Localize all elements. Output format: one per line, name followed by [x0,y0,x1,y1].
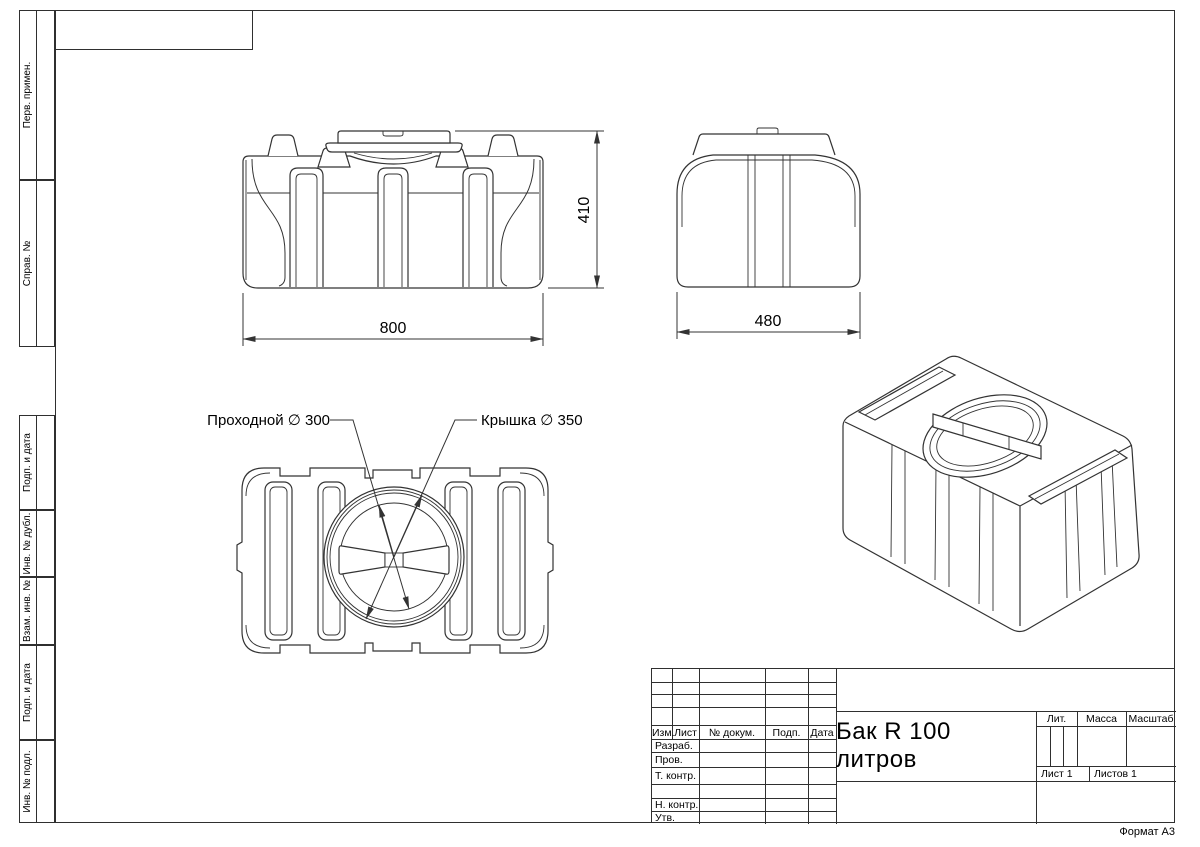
margin-cell-divider [36,646,37,739]
titleblock-line [1050,726,1051,766]
front-width-dim-text: 800 [380,320,407,337]
titleblock-line [652,767,836,768]
titleblock-line [652,694,836,695]
margin-cell-vzam-inv-no: Взам. инв. № [19,577,55,645]
isometric-view [815,348,1165,648]
row-label-razrab: Разраб. [655,740,693,752]
front-lid [318,131,468,167]
margin-cell-sprav-no: Справ. № [19,180,55,347]
margin-cell-podp-i-data-1: Подп. и дата [19,415,55,510]
masshtab-header: Масштаб [1126,713,1176,725]
col-header-list: Лист [672,727,699,739]
sheet-number: Лист 1 [1041,768,1073,780]
titleblock-line [1036,726,1176,727]
front-ribs [290,168,493,287]
row-label-prov: Пров. [655,754,683,766]
titleblock-line [652,811,836,812]
format-note: Формат А3 [1085,826,1175,838]
front-view-body [243,131,543,288]
front-view: 800 410 [180,115,610,360]
margin-cell-inv-no-dubl: Инв. № дубл. [19,510,55,577]
side-dimensions: 480 [677,292,860,339]
top-view: Проходной ∅ 300 Крышка ∅ 350 [180,390,600,690]
margin-label-sprav-no: Справ. № [20,181,36,346]
side-lid-trapezoid [693,134,835,155]
passage-callout-text: Проходной ∅ 300 [207,412,330,429]
margin-label-inv-no-dubl: Инв. № дубл. [20,511,36,576]
col-header-podp: Подп. [765,727,808,739]
titleblock-line [652,752,836,753]
front-left-end-curve [252,159,285,286]
col-header-izm: Изм. [652,727,672,739]
titleblock-line [699,669,700,824]
iso-tank [843,356,1139,631]
titleblock-line [808,669,809,824]
margin-label-perv-primen: Перв. примен. [20,11,36,179]
col-header-ndocum: № докум. [699,727,765,739]
drawing-sheet: Перв. примен. Справ. № Подп. и дата Инв.… [0,0,1200,847]
margin-cell-perv-primen: Перв. примен. [19,10,55,180]
side-view-body [677,128,860,287]
side-lid-notch [757,128,778,134]
titleblock-line [1089,766,1090,781]
margin-label-inv-no-podl: Инв. № подл. [20,741,36,822]
titleblock-line [836,781,1176,782]
massa-header: Масса [1077,713,1126,725]
side-body-outline [677,155,860,287]
margin-cell-divider [36,511,37,576]
titleblock-line [652,784,836,785]
margin-cell-divider [36,578,37,644]
titleblock-line [652,725,836,726]
row-label-utv: Утв. [655,812,675,824]
margin-cell-divider [36,11,37,179]
side-view: 480 [655,115,890,360]
margin-cell-divider [36,181,37,346]
titleblock-line [1036,766,1176,767]
front-height-dim-text: 410 [576,197,593,224]
lit-header: Лит. [1036,713,1077,725]
side-width-dim-text: 480 [755,313,782,330]
front-right-end-curve [501,159,534,286]
titleblock-line [652,707,836,708]
sheets-total: Листов 1 [1094,768,1137,780]
titleblock-line [1036,711,1037,824]
margin-cell-podp-i-data-2: Подп. и дата [19,645,55,740]
margin-label-podp-i-data-2: Подп. и дата [20,646,36,739]
first-application-box [55,10,253,50]
side-ribs [748,155,790,287]
row-label-nkontr: Н. контр. [655,799,698,811]
title-block: Изм. Лист № докум. Подп. Дата Разраб. Пр… [651,668,1175,823]
titleblock-line [652,682,836,683]
margin-cell-inv-no-podl: Инв. № подл. [19,740,55,823]
margin-cell-divider [36,741,37,822]
col-header-data: Дата [808,727,836,739]
side-inner-shoulder [682,160,855,227]
lid-callout-text: Крышка ∅ 350 [481,412,583,429]
margin-label-vzam-inv-no: Взам. инв. № [20,578,36,644]
titleblock-line [765,669,766,824]
row-label-tkontr: Т. контр. [655,770,696,782]
document-title: Бак R 100 литров [836,711,1036,781]
margin-cell-divider [36,416,37,509]
titleblock-line [1063,726,1064,766]
margin-label-podp-i-data-1: Подп. и дата [20,416,36,509]
